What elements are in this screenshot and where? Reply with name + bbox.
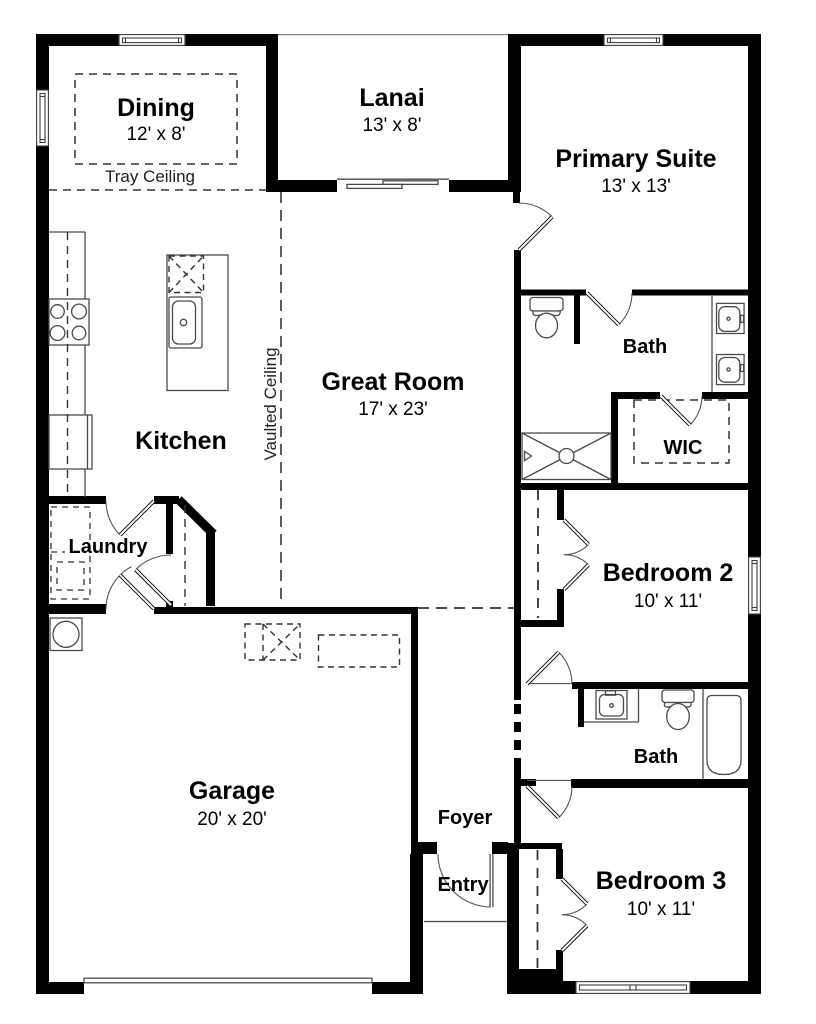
- svg-text:13' x 13': 13' x 13': [601, 176, 671, 197]
- svg-text:13' x 8': 13' x 8': [362, 115, 421, 136]
- svg-text:12' x 8': 12' x 8': [126, 124, 185, 145]
- svg-text:Garage: Garage: [189, 777, 275, 805]
- svg-text:Entry: Entry: [437, 874, 489, 896]
- svg-text:Foyer: Foyer: [438, 807, 493, 829]
- svg-text:Lanai: Lanai: [359, 84, 424, 112]
- svg-text:17' x 23': 17' x 23': [358, 399, 428, 420]
- svg-text:10' x 11': 10' x 11': [634, 591, 702, 612]
- svg-text:WIC: WIC: [664, 437, 703, 459]
- svg-text:20' x 20': 20' x 20': [197, 809, 267, 830]
- svg-text:Laundry: Laundry: [69, 536, 149, 558]
- svg-text:Great Room: Great Room: [321, 368, 464, 396]
- svg-text:Kitchen: Kitchen: [135, 427, 227, 455]
- svg-text:Bath: Bath: [634, 746, 678, 768]
- svg-text:Tray Ceiling: Tray Ceiling: [105, 167, 195, 186]
- svg-text:Bedroom 3: Bedroom 3: [596, 867, 727, 895]
- svg-text:10' x 11': 10' x 11': [627, 899, 695, 920]
- svg-text:Vaulted Ceiling: Vaulted Ceiling: [261, 347, 280, 460]
- svg-text:Primary Suite: Primary Suite: [555, 145, 716, 173]
- svg-text:Dining: Dining: [117, 94, 195, 122]
- svg-text:Bath: Bath: [623, 336, 667, 358]
- svg-text:Bedroom 2: Bedroom 2: [603, 559, 734, 587]
